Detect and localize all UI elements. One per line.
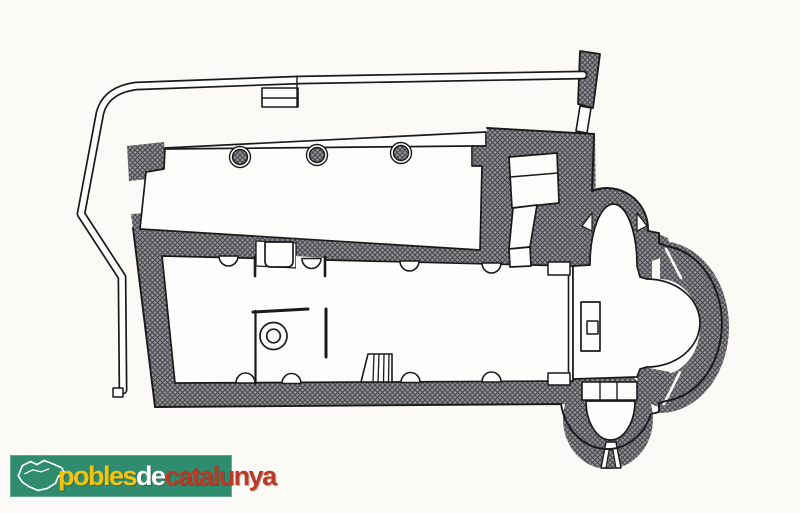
- logo-word-pobles: pobles: [58, 461, 136, 491]
- hall-column: [391, 143, 412, 164]
- scanned-floor-plan: poblesdecatalunya: [0, 0, 800, 513]
- baptismal-font: [260, 323, 287, 350]
- pobles-de-catalunya-logo: poblesdecatalunya: [10, 455, 232, 497]
- precinct-wall-foot: [113, 388, 123, 397]
- logo-word-catalunya: catalunya: [165, 461, 276, 491]
- presbytery-steps: [582, 382, 637, 400]
- tower-stair-room: [509, 153, 559, 208]
- hall-column: [230, 147, 251, 168]
- hall-column: [307, 145, 328, 166]
- chancel-pilaster-south: [548, 373, 570, 385]
- logo-text: poblesdecatalunya: [58, 455, 276, 497]
- altar: [581, 302, 600, 351]
- floor-plan-drawing: [0, 0, 800, 513]
- logo-word-de: de: [136, 461, 165, 491]
- tower-passage-lower: [509, 247, 531, 267]
- door-leaf: [265, 242, 293, 267]
- chancel-pilaster-north: [548, 262, 570, 275]
